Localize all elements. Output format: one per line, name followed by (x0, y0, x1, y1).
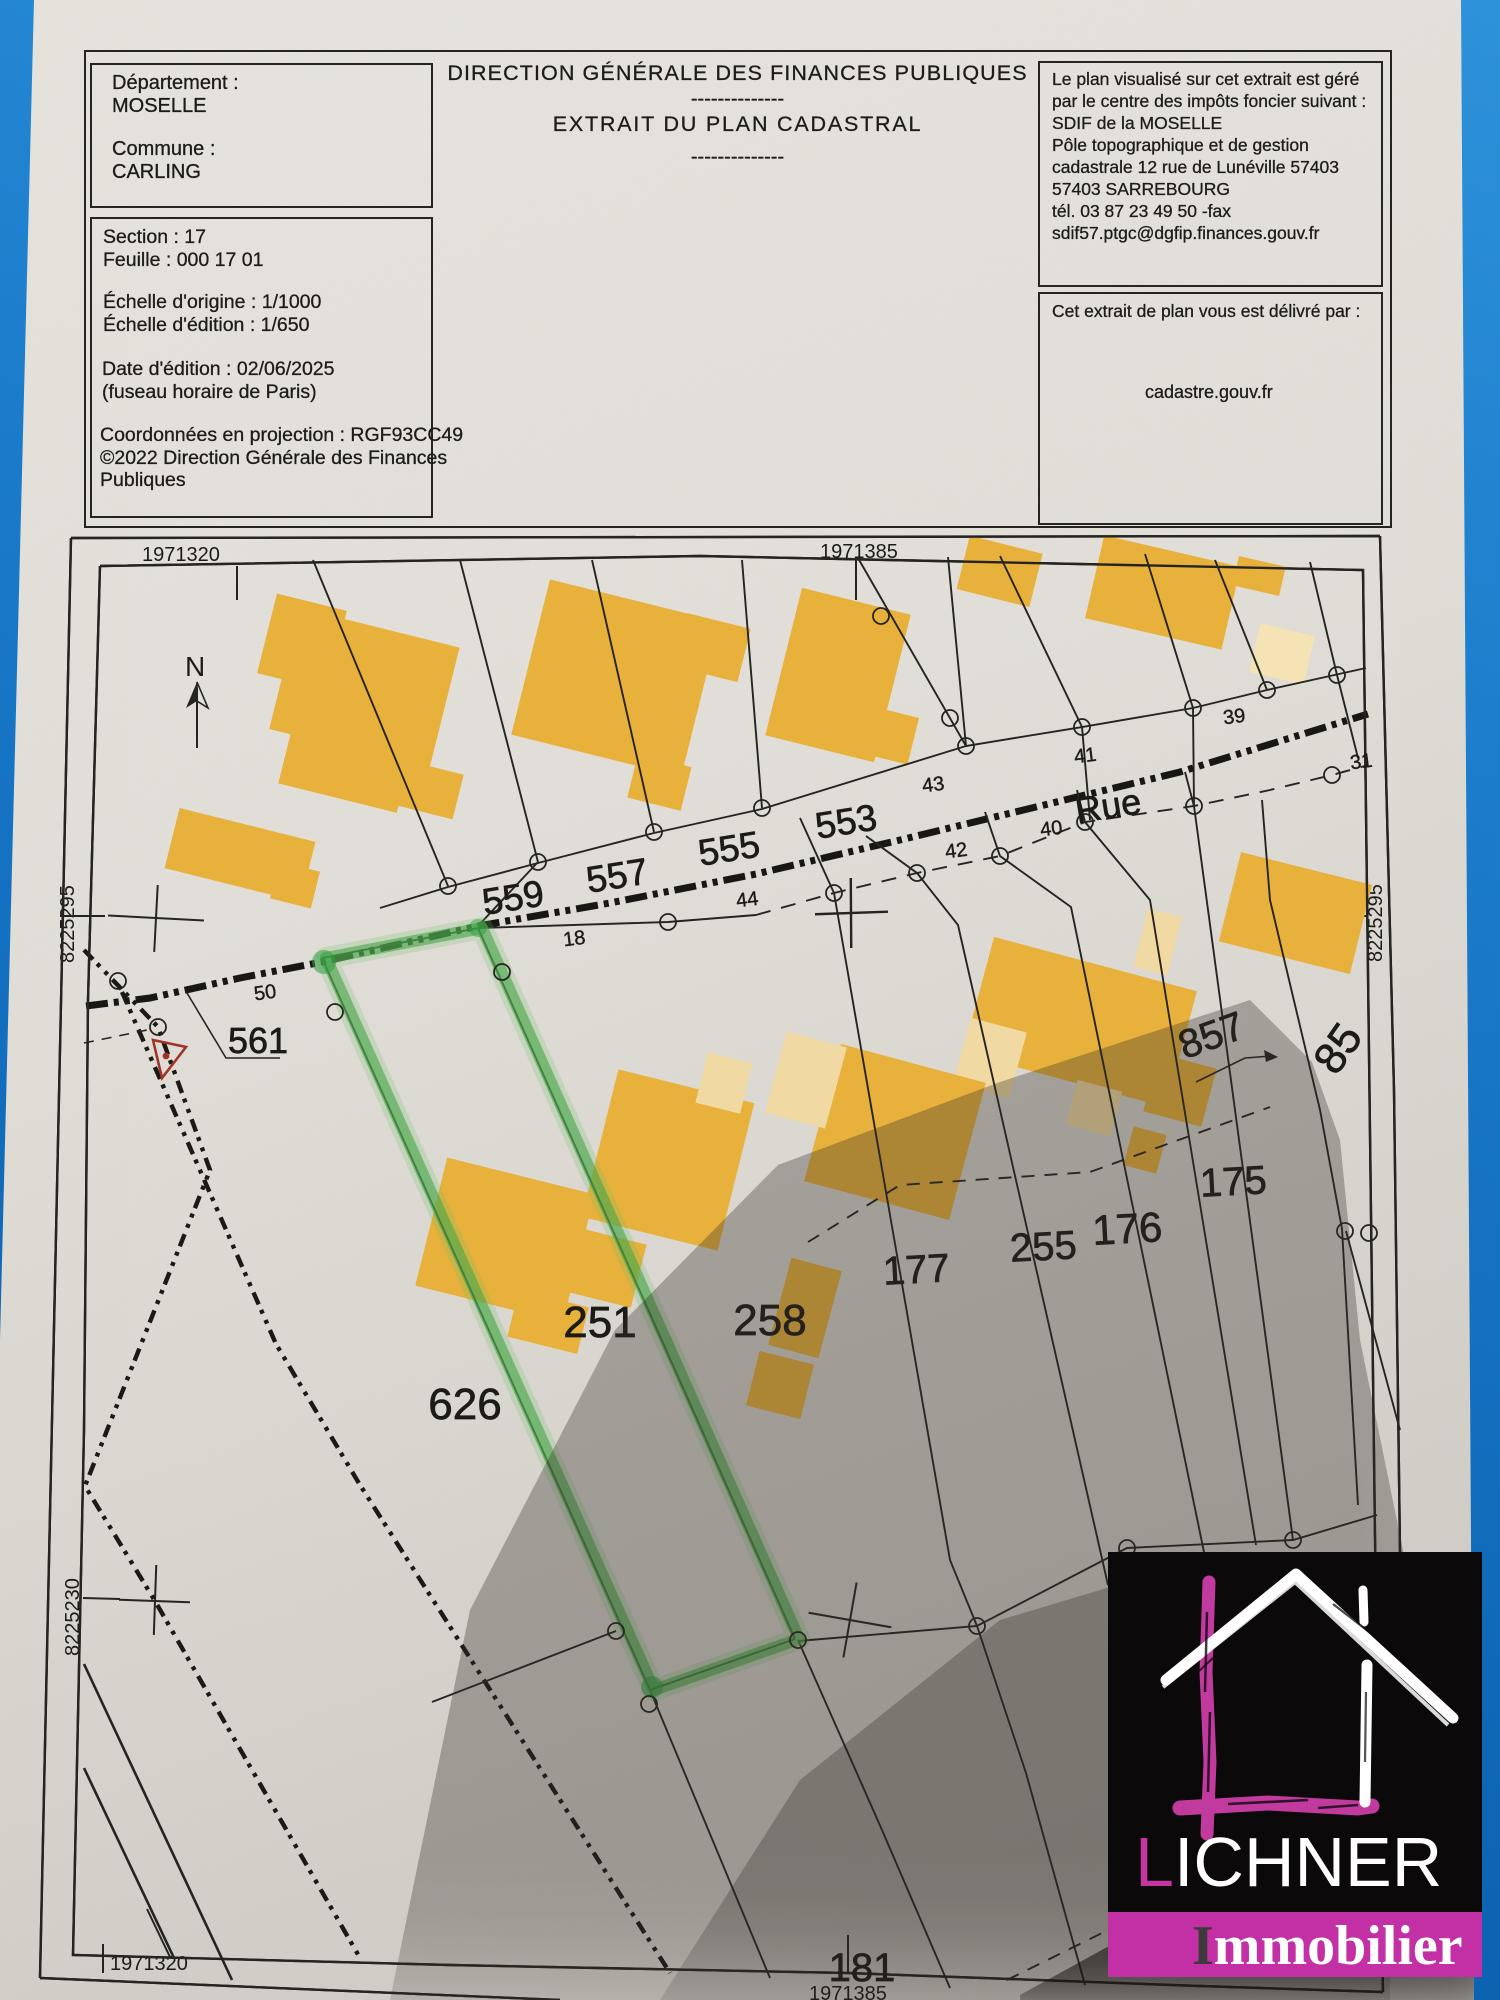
svg-text:1971320: 1971320 (142, 544, 220, 566)
svg-text:39: 39 (1222, 705, 1247, 730)
svg-text:44: 44 (735, 888, 760, 913)
svg-text:41: 41 (1073, 744, 1098, 769)
svg-text:40: 40 (1039, 817, 1064, 842)
svg-text:LICHNER: LICHNER (1135, 1823, 1442, 1901)
svg-text:31: 31 (1349, 750, 1374, 775)
svg-text:50: 50 (253, 981, 278, 1006)
svg-text:N: N (185, 651, 205, 682)
svg-text:8225295: 8225295 (57, 885, 79, 963)
svg-text:18: 18 (562, 927, 587, 952)
svg-text:42: 42 (944, 839, 969, 864)
svg-text:Immobilier: Immobilier (1192, 1915, 1463, 1977)
svg-text:43: 43 (921, 773, 946, 798)
svg-text:626: 626 (428, 1380, 501, 1429)
svg-text:561: 561 (228, 1020, 288, 1061)
